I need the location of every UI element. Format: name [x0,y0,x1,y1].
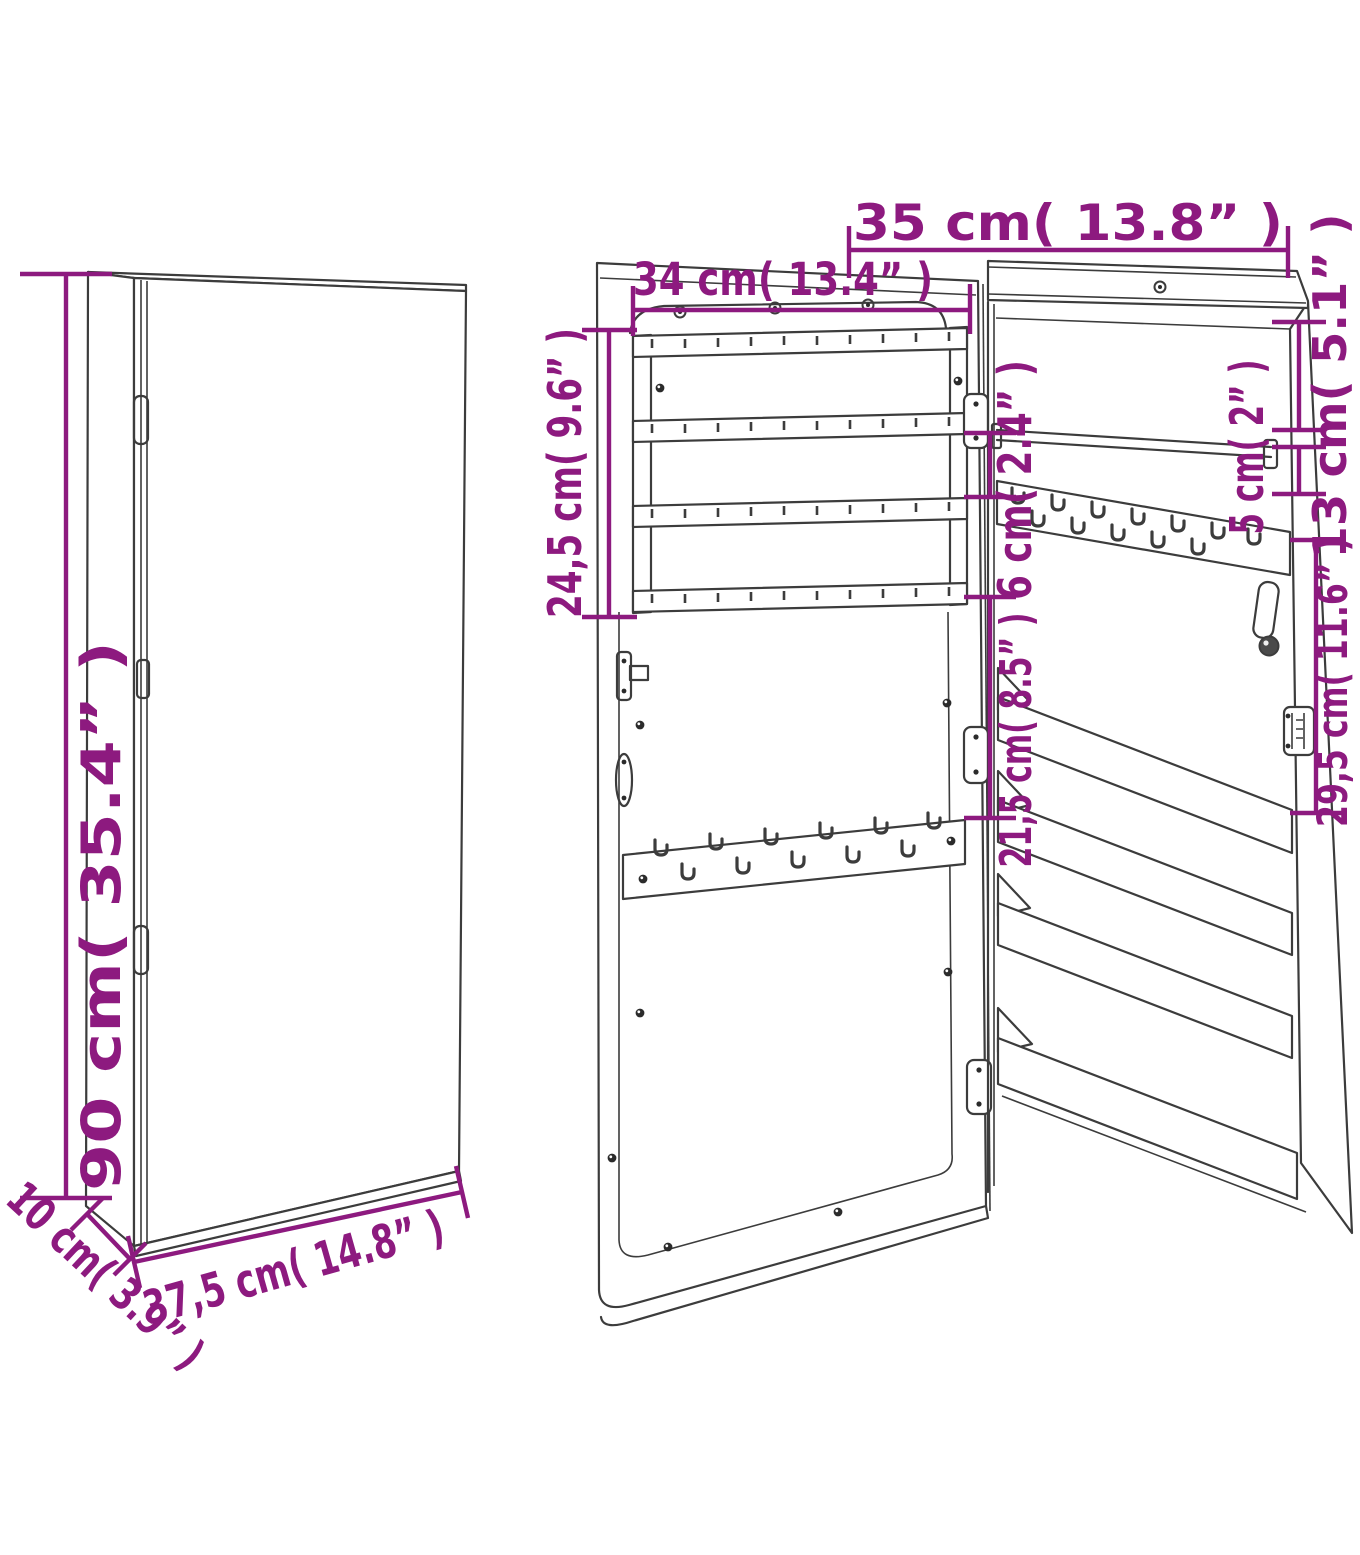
interior-shelves [998,668,1306,1212]
rod-gap-dim-label: 6 cm( 2.4” ) [988,360,1042,600]
rod-to-rail-dim-label: 5 cm( 2” ) [1220,360,1274,535]
screw-icon [639,875,648,884]
organizer-height-dim-label: 24,5 cm( 9.6” ) [538,328,592,618]
organizer-left-stile [633,335,651,613]
top-board [988,261,1308,308]
top-to-rod-dimension: 13 cm( 5.1” ) [1272,214,1357,559]
organizer-width-dim-label: 34 cm( 13.4” ) [633,253,933,306]
top-to-rod-dim-label: 13 cm( 5.1” ) [1303,214,1357,559]
dimension-diagram: 90 cm( 35.4” ) 37,5 cm( 14.8” ) 10 cm( 3… [0,0,1360,1555]
door-inside-view [597,263,991,1325]
cabinet-width-dim-label: 35 cm( 13.8” ) [853,194,1283,252]
closed-cabinet-view [86,272,466,1256]
interior-top-line [996,318,1290,329]
hook-rail-drop-dim-label: 21,5 cm( 8.5” ) [991,613,1042,868]
rail-to-shelf-dim-label: 29,5 cm( 11.6” ) [1308,537,1357,827]
dimension-diagram-page: 90 cm( 35.4” ) 37,5 cm( 14.8” ) 10 cm( 3… [0,0,1360,1555]
lock-hanger-icon [1252,581,1280,656]
screw-icon [947,837,956,846]
bottom-board-lip [998,1038,1297,1199]
height-dim-label: 90 cm( 35.4” ) [70,641,133,1191]
organizer-right-stile [950,327,967,605]
cabinet-mirror-door-front [134,278,466,1246]
